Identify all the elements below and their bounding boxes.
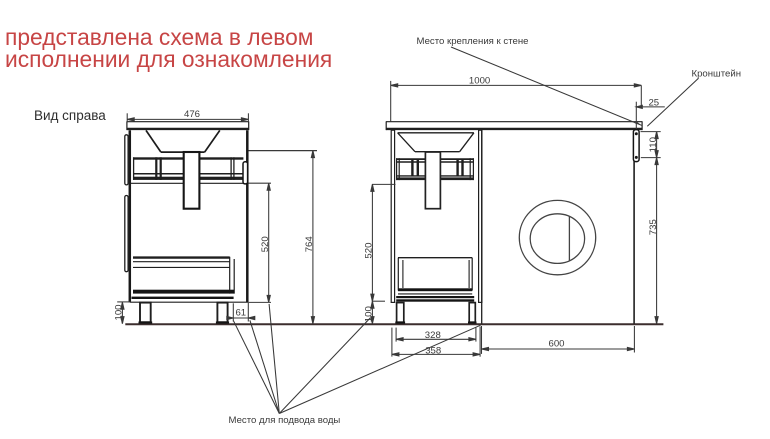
svg-text:358: 358 xyxy=(425,345,441,356)
svg-text:110: 110 xyxy=(648,137,659,152)
svg-text:764: 764 xyxy=(304,236,315,253)
svg-text:Место для подвода воды: Место для подвода воды xyxy=(229,415,341,426)
svg-text:520: 520 xyxy=(260,236,271,252)
svg-text:600: 600 xyxy=(548,339,564,350)
svg-text:328: 328 xyxy=(425,330,441,341)
svg-text:Место крепления к стене: Место крепления к стене xyxy=(417,36,529,47)
svg-text:100: 100 xyxy=(114,304,125,320)
svg-text:520: 520 xyxy=(364,243,375,259)
svg-text:735: 735 xyxy=(648,219,659,235)
svg-text:61: 61 xyxy=(235,308,246,319)
svg-text:1000: 1000 xyxy=(469,75,490,86)
svg-text:Кронштейн: Кронштейн xyxy=(692,68,742,79)
svg-text:25: 25 xyxy=(648,98,659,109)
svg-text:476: 476 xyxy=(184,109,200,120)
